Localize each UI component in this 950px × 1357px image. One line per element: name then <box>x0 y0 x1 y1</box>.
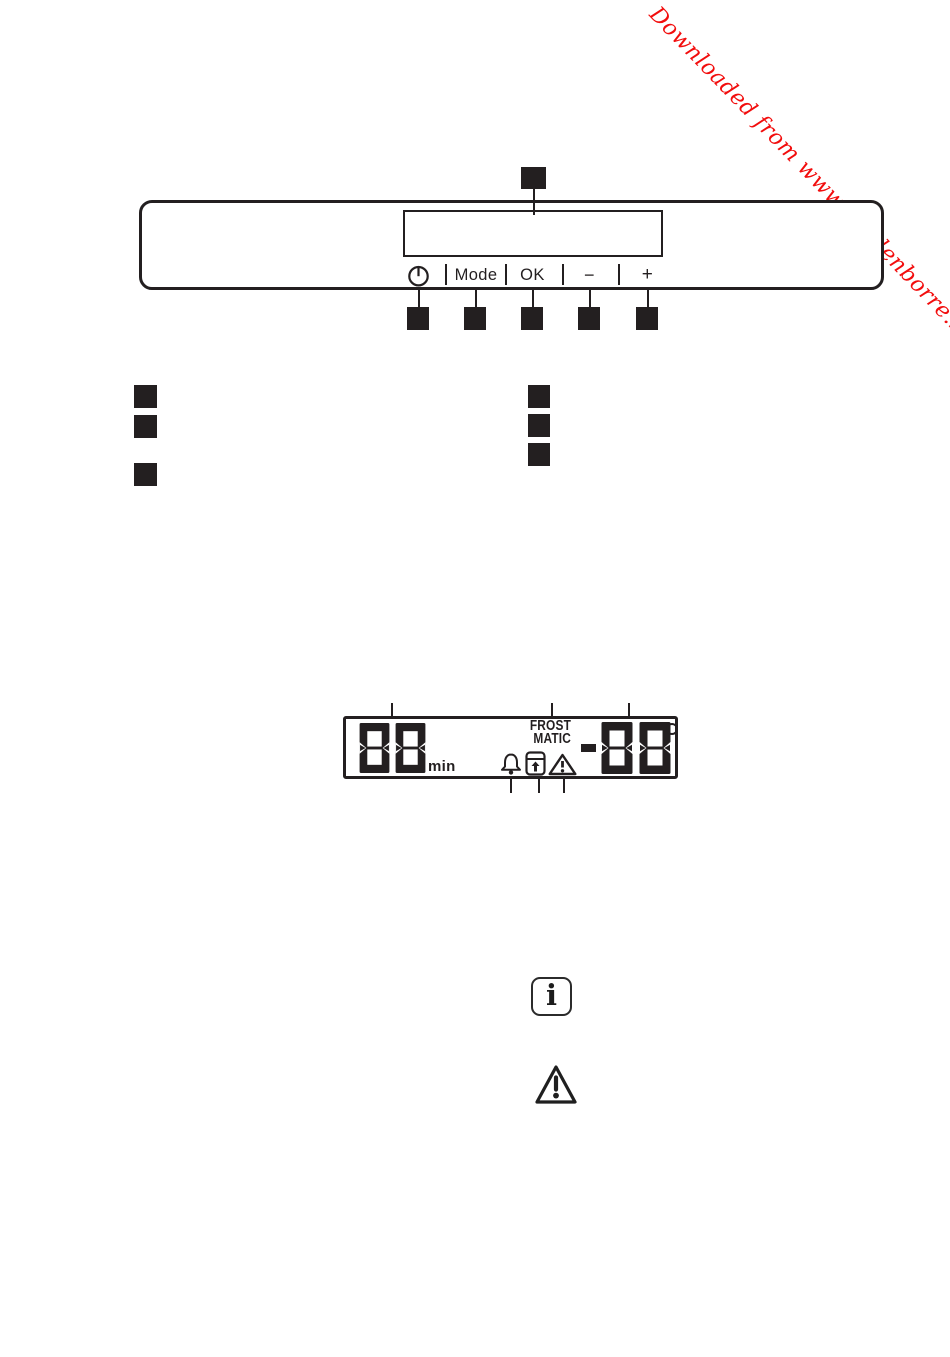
legend-marker <box>528 443 551 466</box>
callout-line <box>418 287 420 308</box>
timer-unit-label: min <box>428 758 456 775</box>
callout-line-display <box>533 189 535 215</box>
manual-page: Downloaded from www.vandenborre.be Mode … <box>0 0 950 1357</box>
button-separator <box>562 264 564 285</box>
legend-marker <box>134 463 157 486</box>
info-icon: i <box>531 977 572 1016</box>
callout-line-timer <box>391 703 393 717</box>
callout-marker-power <box>407 307 429 330</box>
watermark: Downloaded from www.vandenborre.be <box>644 2 950 350</box>
callout-marker-ok <box>521 307 543 330</box>
callout-line-bell <box>510 779 512 793</box>
power-icon <box>407 264 430 287</box>
alarm-bell-icon <box>499 753 523 775</box>
callout-marker-minus <box>578 307 600 330</box>
callout-line-temperature <box>628 703 630 717</box>
callout-line <box>475 287 477 308</box>
callout-line <box>589 287 591 308</box>
callout-line <box>647 287 649 308</box>
callout-marker-plus <box>636 307 658 330</box>
callout-line-lock <box>538 779 540 793</box>
legend-marker <box>528 414 551 437</box>
mode-button: Mode <box>446 263 506 287</box>
timer-seven-segment <box>359 723 426 773</box>
info-symbol: i <box>546 978 557 1012</box>
warning-icon <box>533 1062 579 1108</box>
degree-symbol-icon <box>666 723 678 735</box>
display-window <box>403 210 663 257</box>
callout-line-warning <box>563 779 565 793</box>
legend-marker <box>528 385 551 408</box>
callout-line-frostmatic <box>551 703 553 717</box>
power-button <box>407 263 430 287</box>
callout-marker-display <box>521 167 546 189</box>
legend-marker <box>134 385 157 408</box>
ok-button: OK <box>512 263 553 287</box>
legend-marker <box>134 415 157 438</box>
button-separator <box>618 264 620 285</box>
warning-triangle-icon <box>548 753 577 776</box>
callout-marker-mode <box>464 307 486 330</box>
frostmatic-label: FROST MATIC <box>513 720 571 746</box>
plus-button: + <box>627 263 668 287</box>
temperature-seven-segment <box>581 722 672 774</box>
child-lock-icon <box>525 751 546 776</box>
callout-line <box>532 287 534 308</box>
button-separator <box>505 264 507 285</box>
minus-button: − <box>569 263 610 287</box>
